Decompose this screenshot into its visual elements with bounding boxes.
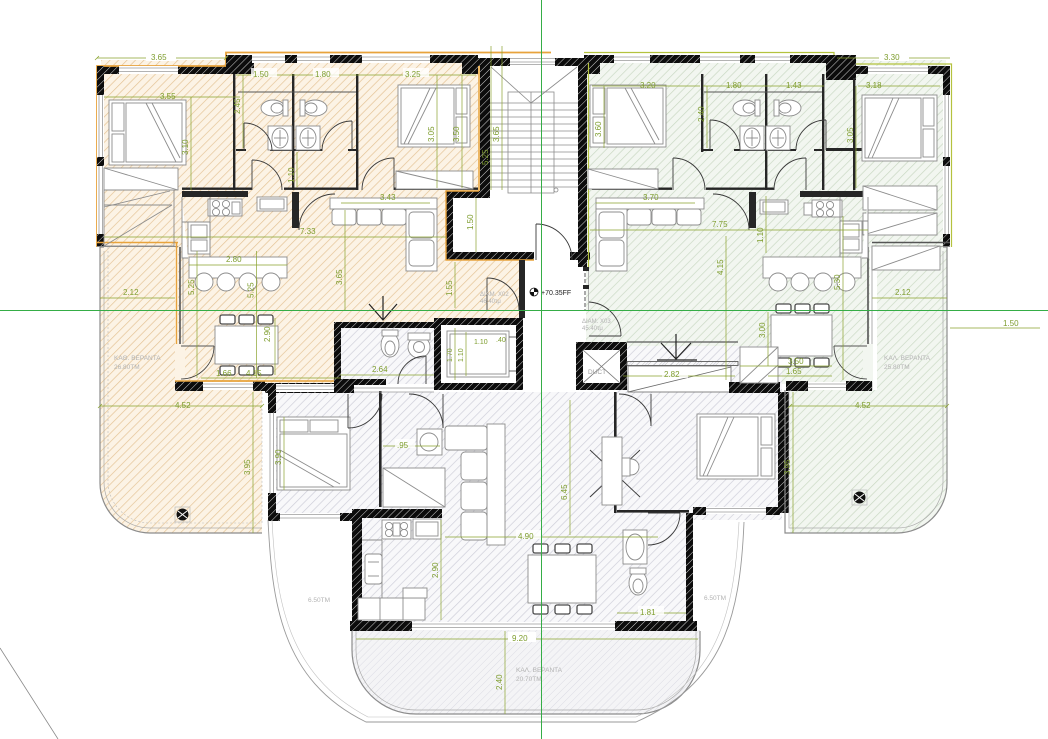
svg-text:ΔΙΑΜ. Χ03: ΔΙΑΜ. Χ03 [582, 319, 611, 325]
svg-text:3.50: 3.50 [452, 126, 461, 142]
svg-text:4.52: 4.52 [855, 401, 871, 410]
svg-text:2.45: 2.45 [233, 98, 242, 114]
svg-text:2.90: 2.90 [431, 562, 440, 578]
svg-text:6.50ΤΜ: 6.50ΤΜ [704, 595, 726, 602]
svg-text:6.50ΤΜ: 6.50ΤΜ [308, 597, 330, 604]
svg-text:2.12: 2.12 [895, 288, 911, 297]
svg-text:3.60: 3.60 [594, 121, 603, 137]
svg-text:3.65: 3.65 [492, 126, 501, 142]
svg-text:2.82: 2.82 [664, 370, 680, 379]
svg-text:3.50: 3.50 [788, 357, 804, 366]
svg-text:3.90: 3.90 [274, 449, 283, 465]
svg-text:3.65: 3.65 [335, 269, 344, 285]
svg-text:1.80: 1.80 [315, 70, 331, 79]
svg-text:2.90: 2.90 [263, 326, 272, 342]
svg-text:1.50: 1.50 [253, 70, 269, 79]
svg-text:+70.35FF: +70.35FF [541, 290, 571, 297]
svg-text:1.81: 1.81 [640, 608, 656, 617]
svg-text:46.40τμ: 46.40τμ [480, 299, 501, 305]
svg-text:20.70ΤΜ: 20.70ΤΜ [516, 676, 542, 683]
svg-text:5.25: 5.25 [247, 282, 256, 298]
svg-text:1.70: 1.70 [447, 348, 454, 362]
svg-text:5.25: 5.25 [187, 279, 196, 295]
svg-text:3.25: 3.25 [405, 70, 421, 79]
svg-text:7.75: 7.75 [712, 220, 728, 229]
svg-text:4.15: 4.15 [716, 259, 725, 275]
svg-text:6.45: 6.45 [560, 484, 569, 500]
svg-text:3.43: 3.43 [380, 193, 396, 202]
svg-text:1.66: 1.66 [216, 369, 232, 378]
svg-text:2.12: 2.12 [123, 288, 139, 297]
svg-text:3.95: 3.95 [243, 459, 252, 475]
svg-text:2.64: 2.64 [372, 365, 388, 374]
svg-text:3.00: 3.00 [758, 322, 767, 338]
svg-text:45.40τμ: 45.40τμ [582, 326, 603, 332]
svg-text:1.10: 1.10 [458, 348, 465, 362]
svg-text:25.80ΤΜ: 25.80ΤΜ [884, 364, 910, 371]
svg-text:3.20: 3.20 [640, 81, 656, 90]
svg-text:1.10: 1.10 [287, 167, 296, 183]
svg-text:3.10: 3.10 [181, 139, 190, 155]
svg-text:4.52: 4.52 [175, 401, 191, 410]
svg-text:DUCT: DUCT [588, 369, 606, 376]
svg-text:1.50: 1.50 [466, 214, 475, 230]
svg-text:1.80: 1.80 [726, 81, 742, 90]
svg-text:2.40: 2.40 [697, 106, 706, 122]
svg-text:2.80: 2.80 [226, 255, 242, 264]
svg-text:3.30: 3.30 [884, 53, 900, 62]
svg-text:ΚΑΛ. ΒΕΡΑΝΤΑ: ΚΑΛ. ΒΕΡΑΝΤΑ [884, 355, 931, 362]
svg-text:4.15: 4.15 [246, 369, 262, 378]
svg-text:1.55: 1.55 [445, 280, 454, 296]
svg-text:3.18: 3.18 [866, 81, 882, 90]
svg-text:3.55: 3.55 [160, 92, 176, 101]
svg-text:1.10: 1.10 [474, 339, 488, 346]
svg-text:2.40: 2.40 [495, 674, 504, 690]
svg-text:3.05: 3.05 [427, 126, 436, 142]
svg-text:26.80ΤΜ: 26.80ΤΜ [114, 364, 140, 371]
svg-text:3.05: 3.05 [846, 127, 855, 143]
svg-text:1.50: 1.50 [1003, 319, 1019, 328]
svg-text:ΚΑΛ. ΒΕΡΑΝΤΑ: ΚΑΛ. ΒΕΡΑΝΤΑ [516, 667, 563, 674]
svg-text:3.65: 3.65 [151, 53, 167, 62]
svg-text:9.20: 9.20 [512, 634, 528, 643]
svg-text:4.90: 4.90 [518, 532, 534, 541]
svg-text:ΔΙΑΜ. Χ02: ΔΙΑΜ. Χ02 [480, 292, 509, 298]
svg-text:3.95: 3.95 [783, 459, 792, 475]
svg-text:ΚΑΘ. ΒΕΡΑΝΤΑ: ΚΑΘ. ΒΕΡΑΝΤΑ [114, 355, 161, 362]
svg-text:.95: .95 [397, 441, 409, 450]
svg-text:5.30: 5.30 [833, 274, 842, 290]
svg-text:5.25: 5.25 [481, 149, 490, 165]
svg-text:1.65: 1.65 [786, 367, 802, 376]
svg-text:7.33: 7.33 [300, 227, 316, 236]
svg-text:3.70: 3.70 [643, 193, 659, 202]
svg-text:1.43: 1.43 [786, 81, 802, 90]
svg-text:1.10: 1.10 [756, 227, 765, 243]
svg-text:.40: .40 [496, 337, 506, 344]
